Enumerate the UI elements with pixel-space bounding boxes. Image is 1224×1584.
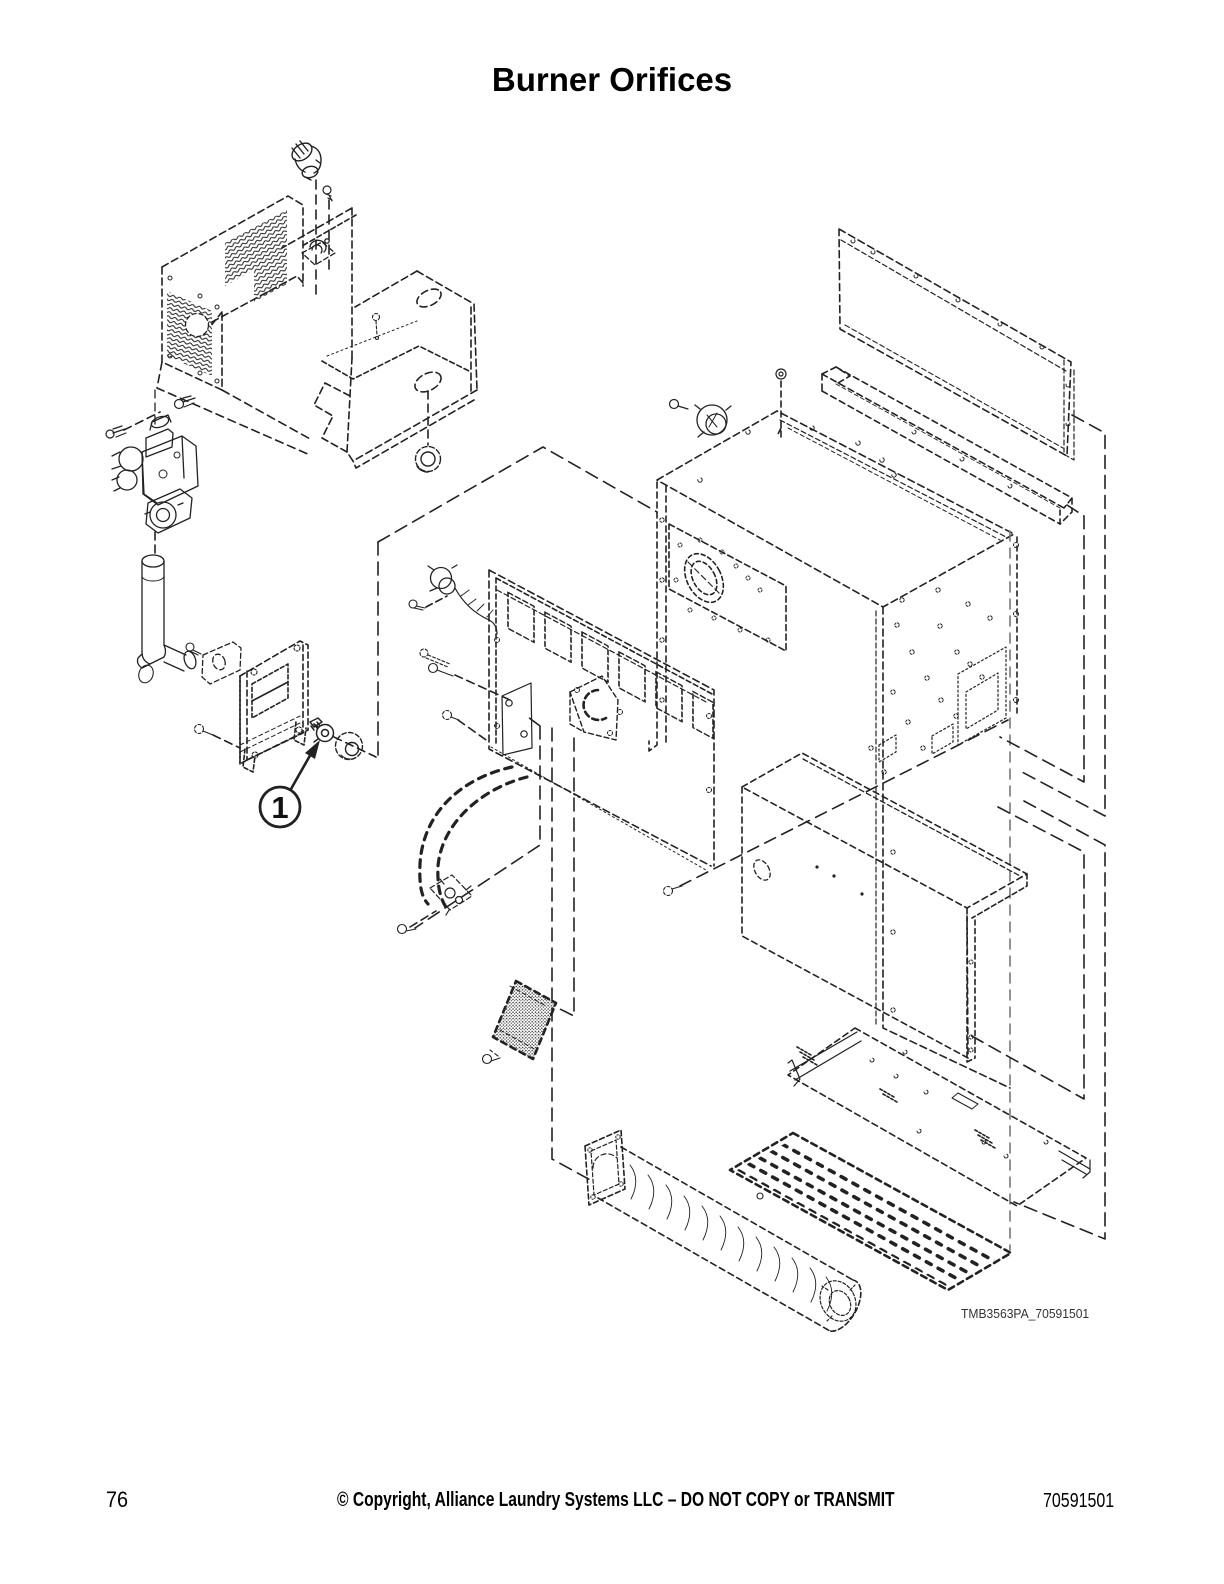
svg-text:1: 1 [271, 790, 288, 825]
